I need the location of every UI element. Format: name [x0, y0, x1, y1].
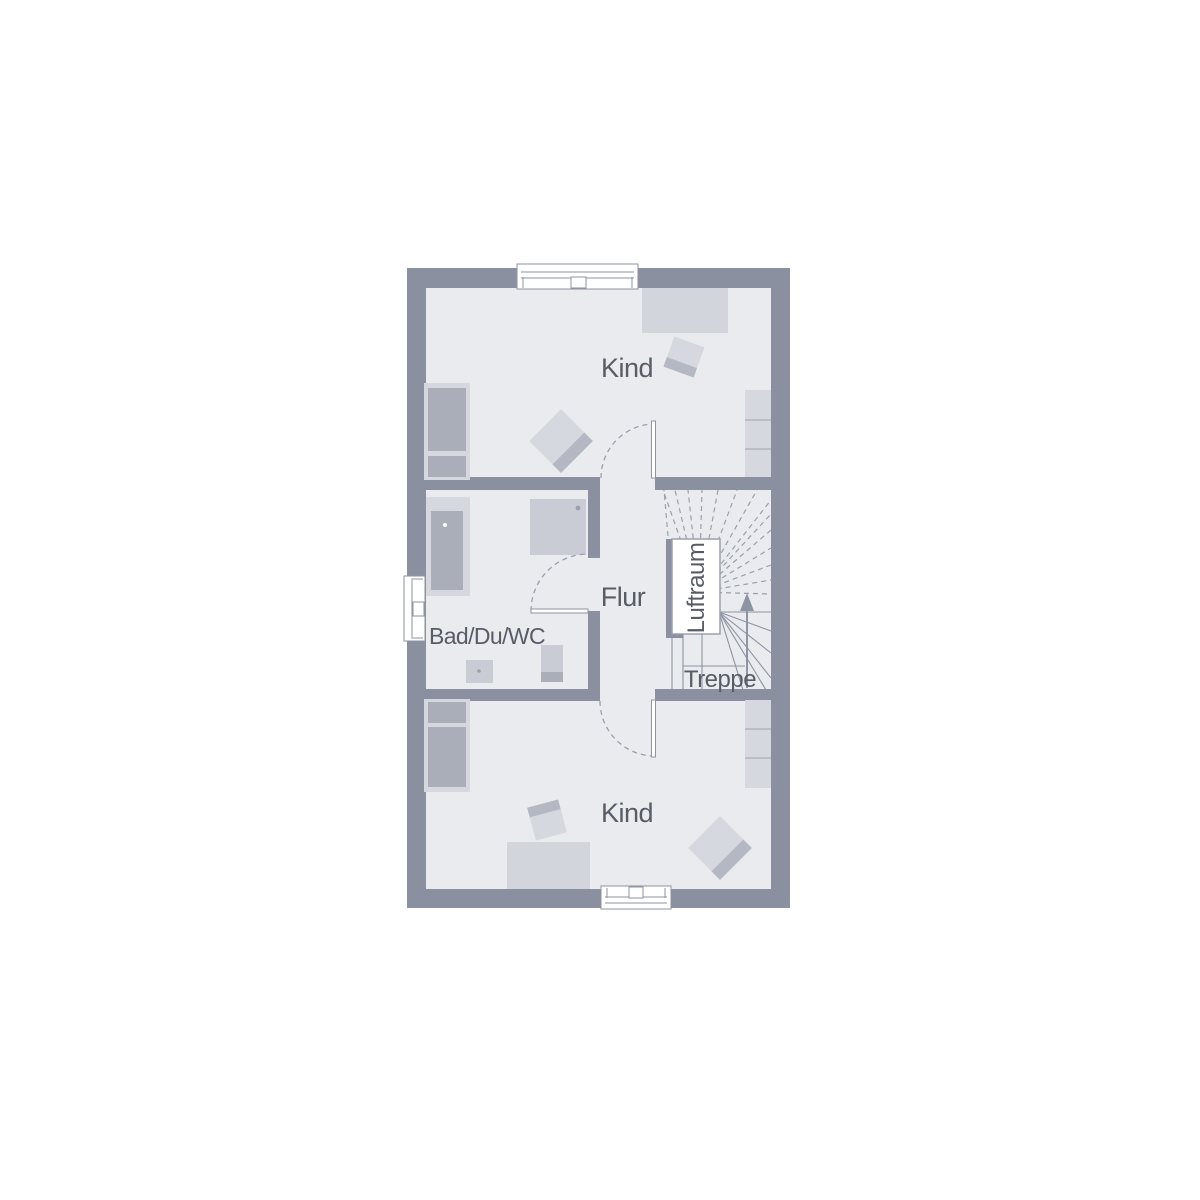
room-label-treppe: Treppe — [684, 666, 756, 693]
door-leaf — [531, 609, 588, 613]
window-top — [517, 264, 638, 289]
desk-symbol — [507, 842, 590, 889]
toilet-symbol — [541, 645, 563, 682]
outer-wall-bottom — [407, 889, 790, 908]
door-leaf — [652, 700, 656, 757]
window-bottom — [601, 886, 671, 909]
sink-symbol — [466, 660, 493, 683]
bed-symbol — [424, 383, 470, 480]
desk-symbol — [642, 288, 728, 333]
room-label-hallway: Flur — [601, 582, 646, 612]
room-label-bathroom: Bad/Du/WC — [429, 623, 545, 649]
bed-symbol — [424, 699, 470, 792]
window-handle — [629, 887, 643, 898]
wall-bad-flur-upper — [588, 490, 600, 558]
bathtub-symbol — [426, 497, 470, 596]
window-handle — [571, 277, 586, 288]
wall-bad-flur-lower — [588, 611, 600, 689]
room-label-kind-bottom: Kind — [601, 798, 653, 828]
floor-plan-drawing: Kind Bad/Du/WC Flur Treppe Luftraum Kind — [0, 0, 1200, 1200]
cabinet-symbol — [745, 390, 771, 477]
room-label-luftraum: Luftraum — [683, 543, 710, 634]
shower-symbol — [530, 499, 586, 555]
window-left — [404, 576, 425, 641]
luftraum-side-wall — [666, 539, 672, 634]
wall-kindtop-stairs — [655, 477, 771, 490]
room-label-kind-top: Kind — [601, 353, 653, 383]
window-handle — [413, 602, 424, 616]
outer-wall-right — [771, 268, 790, 908]
floor-plan-canvas: Kind Bad/Du/WC Flur Treppe Luftraum Kind — [0, 0, 1200, 1200]
door-leaf — [652, 421, 656, 478]
cabinet-symbol — [745, 700, 771, 788]
